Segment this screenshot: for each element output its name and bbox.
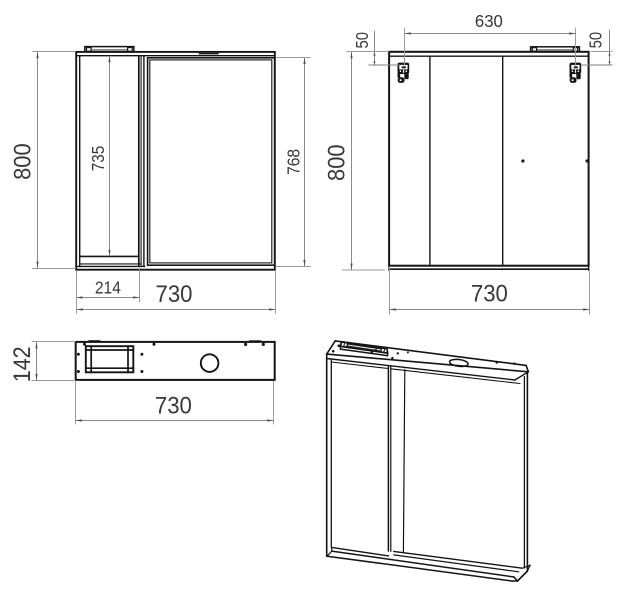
svg-text:800: 800 — [323, 144, 350, 181]
svg-text:768: 768 — [283, 149, 303, 175]
svg-text:50: 50 — [586, 32, 606, 49]
svg-text:50: 50 — [352, 32, 372, 49]
svg-text:800: 800 — [10, 143, 37, 180]
svg-text:630: 630 — [475, 11, 503, 31]
svg-text:730: 730 — [471, 280, 508, 307]
svg-text:730: 730 — [156, 281, 193, 308]
svg-text:730: 730 — [155, 392, 192, 419]
svg-text:142: 142 — [9, 346, 36, 382]
svg-text:214: 214 — [95, 277, 121, 297]
svg-text:735: 735 — [88, 146, 108, 172]
